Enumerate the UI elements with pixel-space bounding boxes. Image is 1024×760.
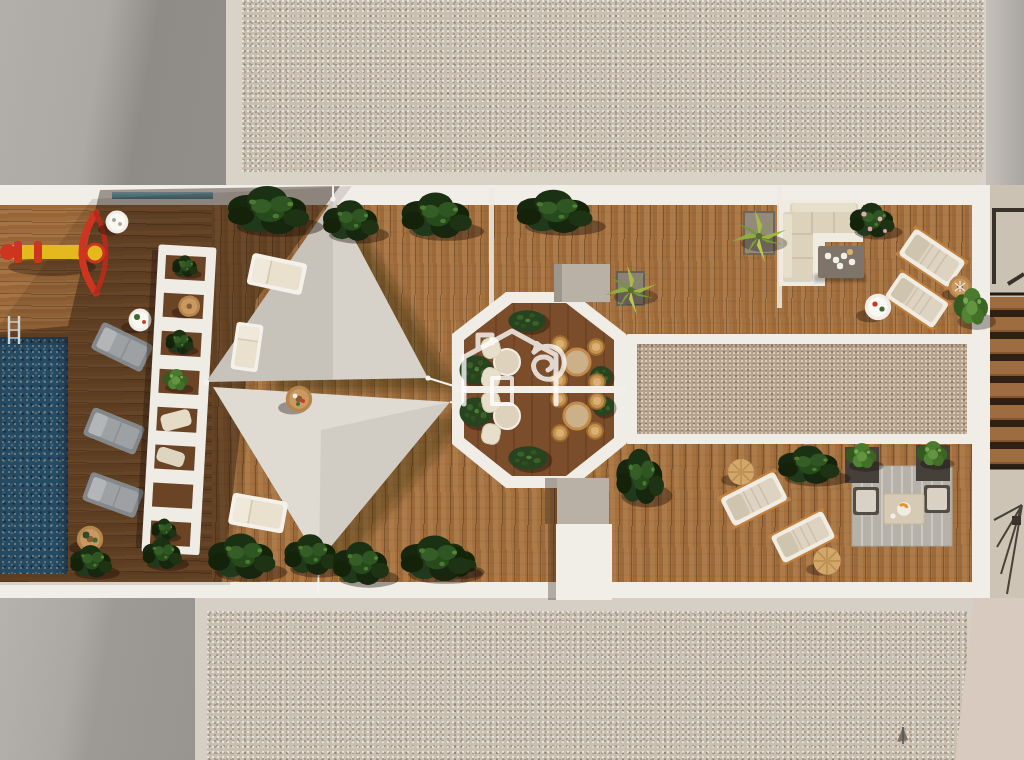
gravel-texture: [207, 611, 967, 760]
gravel-roof-bottom: [195, 598, 974, 760]
concrete-roof-bottom-left: [0, 598, 195, 760]
gravel-roof-top: [226, 0, 1006, 190]
gravel-bed-right: [626, 334, 978, 444]
stairs-landing-top: [990, 185, 1024, 297]
concrete-roof-top-left: [0, 0, 226, 190]
stairs-landing-bottom: [990, 468, 1024, 600]
rooftop-terrace-render: [0, 0, 1024, 760]
gravel-texture: [242, 0, 984, 172]
concrete-roof-top-right: [986, 0, 1024, 190]
gravel-bed-texture: [637, 344, 967, 434]
